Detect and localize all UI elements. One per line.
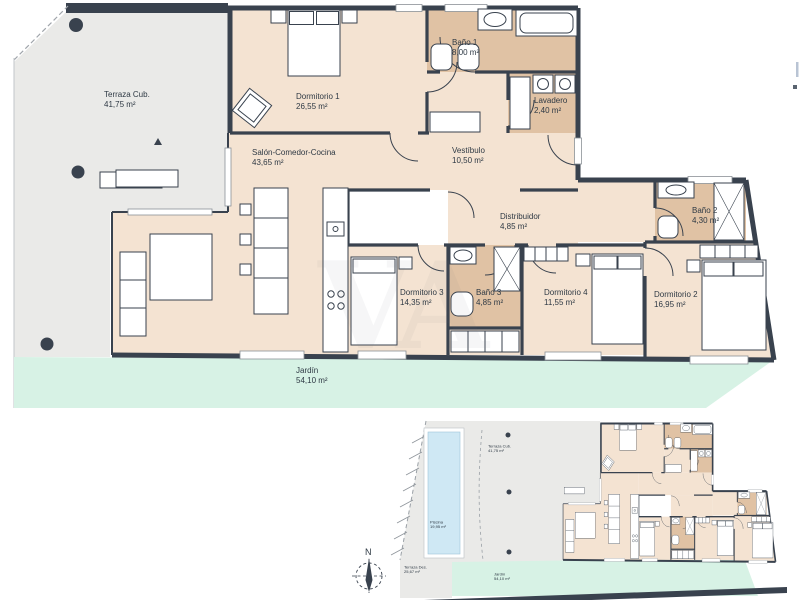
room-label-distribuidor: Distribuidor4,85 m² [500, 212, 540, 232]
room-label-dormitorio-3: Dormitorio 314,35 m² [400, 288, 444, 308]
mini-column-dot [507, 490, 512, 495]
garden-area [14, 357, 772, 408]
mini-column-dot [506, 433, 511, 438]
room-label-salon: Salón-Comedor-Cocina43,65 m² [252, 148, 336, 168]
room-label-dormitorio-4: Dormitorio 411,55 m² [544, 288, 588, 308]
room-label-bano-3: Baño 34,85 m² [476, 288, 503, 308]
compass [352, 558, 386, 593]
room-label-dormitorio-1: Dormitorio 126,55 m² [296, 92, 340, 112]
mini-column-dot [507, 550, 512, 555]
mini-label-piscina: Piscina19,95 m² [430, 520, 446, 529]
room-label-vestibulo: Vestíbulo10,50 m² [452, 146, 485, 166]
pool [428, 432, 460, 554]
room-label-jardin: Jardín54,10 m² [296, 366, 328, 386]
mini-site-plan [391, 421, 787, 600]
mini-label-jardin: Jardín54,10 m² [494, 572, 510, 581]
column-dot [69, 18, 83, 32]
column-dot [41, 338, 54, 351]
terrace-parapet [66, 3, 228, 13]
main-plan [14, 3, 774, 408]
room-label-lavadero: Lavadero2,40 m² [534, 96, 567, 116]
room-label-bano-1: Baño 18,00 m² [452, 38, 479, 58]
mini-label-terraza-cub: Terraza Cub.41,75 m² [488, 444, 511, 453]
floor-plan-page: VA Terraza Cub.41,75 m² Dormitorio 126,5… [0, 0, 800, 600]
room-label-dormitorio-2: Dormitorio 216,95 m² [654, 290, 698, 310]
edge-artifacts [793, 62, 799, 89]
room-label-terraza: Terraza Cub.41,75 m² [104, 90, 150, 110]
compass-north-label: N [365, 547, 372, 557]
room-label-bano-2: Baño 24,30 m² [692, 206, 719, 226]
column-dot [72, 166, 85, 179]
mini-label-terraza-des: Terraza Des.25,67 m² [404, 565, 427, 574]
